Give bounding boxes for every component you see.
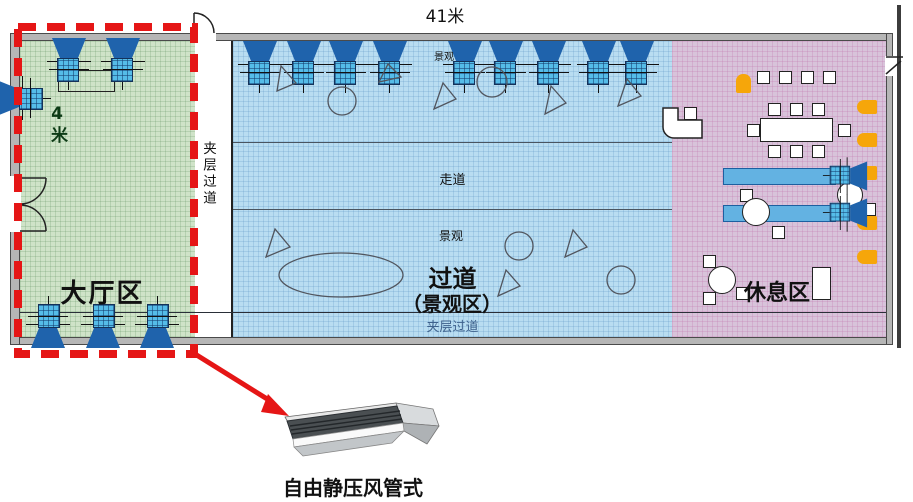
chair-square	[703, 292, 716, 305]
fan-part-hl2	[49, 69, 89, 70]
chair-square	[663, 110, 676, 123]
fan-part-grid	[19, 88, 43, 110]
fan-part-trap	[489, 41, 523, 61]
chair-square	[790, 103, 803, 116]
ac-unit-illustration	[285, 403, 439, 456]
rest-zone-title: 休息区	[741, 275, 813, 307]
fan-part-trap	[287, 41, 321, 61]
mezzanine-corridor-vertical-label: 夹层过道	[198, 141, 218, 207]
fan-part-stem	[598, 85, 599, 93]
fan-part-stem	[389, 85, 390, 93]
chair-square	[790, 145, 803, 158]
fan-part-trap	[850, 162, 867, 191]
chair-square	[747, 124, 760, 137]
fan-coil-unit-icon	[282, 41, 326, 93]
fan-coil-unit-icon	[527, 41, 571, 93]
fan-part-hl2	[30, 78, 31, 118]
fan-part-hl2	[579, 72, 619, 73]
fan-part-stem	[505, 85, 506, 93]
fan-part-grid	[334, 61, 356, 85]
chair-square	[812, 145, 825, 158]
door-opening-right	[885, 56, 894, 76]
fan-part-trap	[0, 81, 19, 115]
fan-part-stem	[43, 98, 51, 99]
fan-coil-unit-icon	[47, 38, 91, 90]
fan-part-grid	[111, 58, 133, 82]
fan-part-grid	[292, 61, 314, 85]
fan-part-trap	[532, 41, 566, 61]
fan-part-trap	[140, 328, 174, 348]
fan-part-trap	[52, 38, 86, 58]
fan-part-trap	[329, 41, 363, 61]
lobby-zone-title: 大厅区	[55, 273, 150, 310]
fan-part-trap	[31, 328, 65, 348]
fan-part-hl2	[284, 72, 324, 73]
fan-part-hl2	[840, 196, 841, 230]
fan-part-grid	[537, 61, 559, 85]
walkway-label: 走道	[233, 169, 672, 188]
fan-coil-unit-icon	[368, 41, 412, 93]
fan-coil-unit-icon	[0, 76, 51, 120]
fan-coil-unit-icon	[823, 157, 867, 194]
fan-part-hl2	[83, 316, 123, 317]
wall-right	[886, 33, 893, 345]
fan-part-grid	[378, 61, 400, 85]
fan-part-hl2	[240, 72, 280, 73]
fan-part-stem	[823, 212, 830, 213]
fan-part-hl2	[28, 316, 68, 317]
fan-part-hl2	[326, 72, 366, 73]
top-dimension-label: 41米	[410, 2, 480, 27]
fan-part-trap	[86, 328, 120, 348]
fan-part-stem	[548, 85, 549, 93]
fan-part-trap	[620, 41, 654, 61]
fan-part-hl2	[370, 72, 410, 73]
fan-part-grid	[625, 61, 647, 85]
chair-square	[772, 226, 785, 239]
side-table	[812, 267, 831, 300]
fan-part-grid	[57, 58, 79, 82]
fan-part-stem	[636, 85, 637, 93]
fan-part-trap	[582, 41, 616, 61]
lounge-chair-icon	[857, 250, 877, 264]
lounge-chair-icon	[857, 100, 877, 114]
conference-table	[760, 118, 833, 142]
fan-part-grid	[453, 61, 475, 85]
fan-part-stem	[122, 82, 123, 90]
fan-part-hl2	[486, 72, 526, 73]
fan-part-hl2	[840, 159, 841, 193]
hvac-floor-plan: 41米 4米 夹层过道 走道 景观 景观 过道 （景观区） 夹层过道 大厅区 休…	[0, 0, 913, 502]
chair-square	[703, 255, 716, 268]
bottom-corridor-label: 夹层过道	[380, 316, 525, 335]
ac-unit-caption: 自由静压风管式	[258, 472, 448, 501]
door-opening-top	[191, 32, 216, 42]
landscape-small-label-mid: 景观	[429, 227, 473, 244]
fan-part-grid	[494, 61, 516, 85]
fan-coil-unit-icon	[101, 38, 145, 90]
lounge-chair-icon	[736, 74, 751, 93]
arrowhead-icon	[261, 394, 289, 416]
fan-part-trap	[106, 38, 140, 58]
fan-part-grid	[248, 61, 270, 85]
left-dimension-label: 4米	[45, 104, 70, 145]
fan-part-hl2	[529, 72, 569, 73]
fan-coil-unit-icon	[823, 194, 867, 231]
fan-part-grid	[587, 61, 609, 85]
round-table	[708, 266, 736, 294]
fan-part-trap	[850, 199, 867, 228]
bench-bar	[723, 168, 836, 185]
chair-square	[812, 103, 825, 116]
right-section-line	[897, 5, 901, 348]
fan-part-hl2	[137, 316, 177, 317]
lounge-chair-icon	[857, 133, 877, 147]
round-table	[742, 198, 770, 226]
fan-part-stem	[303, 85, 304, 93]
fan-coil-unit-icon	[484, 41, 528, 93]
chair-square	[779, 71, 792, 84]
fan-part-hl2	[445, 72, 485, 73]
fan-part-trap	[373, 41, 407, 61]
chair-square	[684, 107, 697, 120]
chair-square	[838, 124, 851, 137]
chair-square	[823, 71, 836, 84]
fan-coil-unit-icon	[615, 41, 659, 93]
chair-square	[768, 145, 781, 158]
fan-part-stem	[345, 85, 346, 93]
chair-square	[801, 71, 814, 84]
bench-bar	[723, 205, 836, 222]
chair-square	[768, 103, 781, 116]
fan-part-stem	[48, 296, 49, 304]
fan-part-hl2	[103, 69, 143, 70]
fan-part-trap	[243, 41, 277, 61]
walkway-zone-subtitle: （景观区）	[372, 288, 532, 317]
fan-coil-unit-icon	[238, 41, 282, 93]
fan-part-stem	[823, 175, 830, 176]
fan-part-hl2	[617, 72, 657, 73]
landscape-small-label-top: 景观	[424, 48, 464, 63]
fan-part-stem	[464, 85, 465, 93]
fan-coil-unit-icon	[324, 41, 368, 93]
chair-square	[757, 71, 770, 84]
fan-part-stem	[68, 82, 69, 90]
fan-part-stem	[259, 85, 260, 93]
fan-part-stem	[157, 296, 158, 304]
door-opening-left	[9, 176, 21, 232]
